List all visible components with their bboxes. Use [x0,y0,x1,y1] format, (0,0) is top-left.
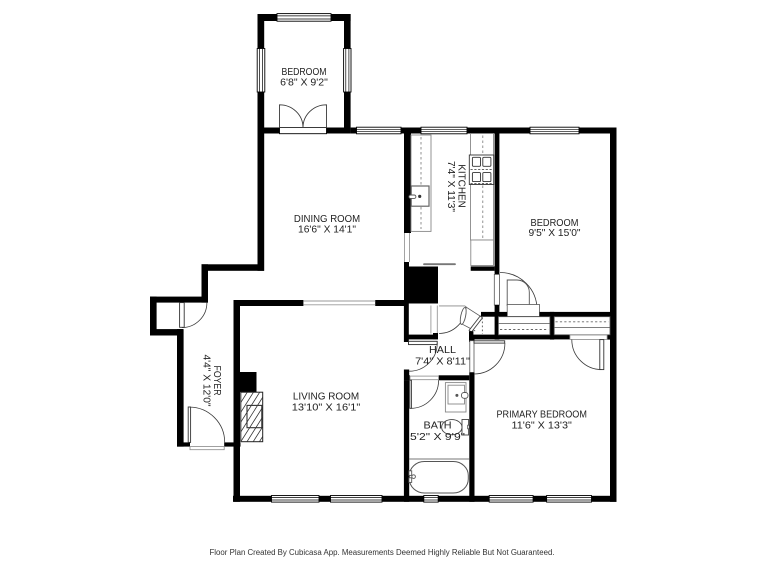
svg-text:6'8" X 9'2": 6'8" X 9'2" [280,78,328,89]
svg-text:4'4" X 12'0": 4'4" X 12'0" [200,355,211,407]
svg-text:9'5" X 15'0": 9'5" X 15'0" [528,228,580,239]
svg-text:7'4" X 11'3": 7'4" X 11'3" [445,161,456,212]
svg-text:PRIMARY BEDROOM: PRIMARY BEDROOM [497,409,587,420]
svg-text:13'10" X 16'1": 13'10" X 16'1" [292,402,361,413]
svg-text:BEDROOM: BEDROOM [531,218,579,229]
svg-text:HALL: HALL [429,345,456,356]
svg-text:LIVING ROOM: LIVING ROOM [293,392,359,403]
svg-text:BEDROOM: BEDROOM [282,67,327,78]
svg-text:BATH: BATH [424,421,452,432]
svg-text:KITCHEN: KITCHEN [455,164,466,208]
svg-text:DINING ROOM: DINING ROOM [294,214,360,225]
svg-text:FOYER: FOYER [211,366,222,396]
svg-text:11'6" X 13'3": 11'6" X 13'3" [512,421,573,432]
svg-text:7'4" X 8'11": 7'4" X 8'11" [415,356,470,367]
svg-text:Floor Plan Created By Cubicasa: Floor Plan Created By Cubicasa App. Meas… [210,548,555,557]
svg-text:5'2" X 9'9": 5'2" X 9'9" [410,432,465,443]
svg-text:16'6" X 14'1": 16'6" X 14'1" [298,225,356,236]
